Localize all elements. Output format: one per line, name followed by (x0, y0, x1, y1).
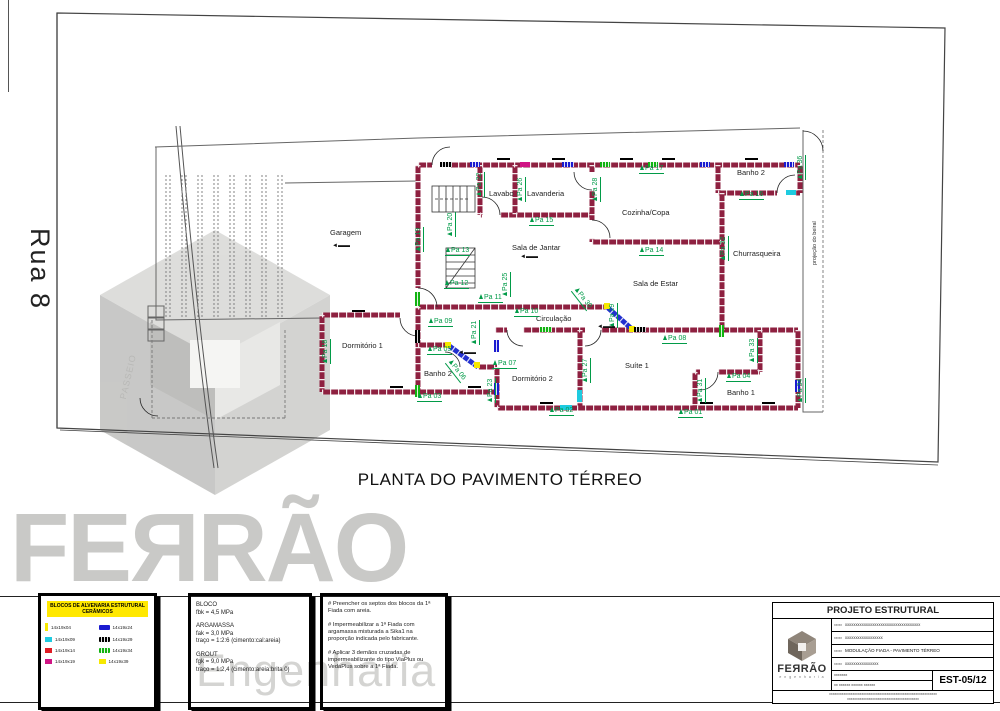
wall-tag-label: Pa 33 (749, 339, 756, 357)
tag-arrow-icon (471, 340, 476, 344)
note-1: # Preencher os septos dos blocos da 1ª F… (328, 601, 440, 615)
notes-panel: # Preencher os septos dos blocos da 1ª F… (320, 593, 448, 710)
drawing-title-row: xxxxx MODULAÇÃO FIADA - PAVIMENTO TÉRREO (832, 645, 993, 658)
window-tick (390, 386, 403, 388)
sheet-code: EST-05/12 (939, 675, 986, 686)
block-chip (786, 190, 796, 195)
wall-tag-label: Pa 11 (484, 294, 502, 301)
wall-tag-label: Pa 27 (582, 359, 589, 377)
legend-item-label: 14x19x29 (113, 637, 133, 642)
wall-tag: Pa 16 (739, 191, 764, 200)
legend-item-label: 14x19x39 (109, 659, 129, 664)
wall-tag: Pa 19 (415, 227, 424, 252)
tag-arrow-icon (445, 280, 449, 285)
company-brand-text: FEЯRÃO (777, 663, 826, 675)
title-block-header: PROJETO ESTRUTURAL (773, 603, 993, 619)
wall-tag-label: Pa 30 (576, 291, 593, 310)
row-label: xxxxx (834, 662, 842, 666)
wall-tag: Pa 34 (797, 378, 806, 403)
wall-tag-label: Pa 13 (451, 247, 469, 254)
wall-tag-label: Pa 29 (609, 304, 616, 322)
title-block-row: xxxxx xxxxxxxxxxxxxxxxxx (832, 632, 993, 645)
window-tick (468, 386, 481, 388)
block-chip (784, 162, 794, 167)
wall-tag-label: Pa 06 (450, 363, 467, 382)
legend-item-label: 14x19x04 (51, 625, 71, 630)
wall-tag: Pa 28 (592, 177, 601, 202)
drawing-title-value: MODULAÇÃO FIADA - PAVIMENTO TÉRREO (845, 648, 940, 653)
wall-tag: Pa 03 (417, 393, 442, 402)
tag-arrow-icon (727, 373, 731, 378)
legend-chip-icon (99, 659, 106, 664)
tag-arrow-icon (429, 318, 433, 323)
legend-item: 14x19x09 (45, 637, 97, 642)
block-chip (520, 162, 530, 167)
wall-tag-label: Pa 22 (476, 173, 483, 191)
wall-tag-label: Pa 12 (450, 280, 468, 287)
room-label: Circulação (536, 314, 571, 323)
room-label: Garagem (330, 228, 361, 237)
room-label: Dormitório 1 (342, 341, 383, 350)
note-2: # Impermeabilizar a 1ª Fiada com argamas… (328, 622, 440, 643)
window-tick (662, 158, 675, 160)
tag-arrow-icon (493, 360, 497, 365)
legend-item-label: 14x19x09 (55, 637, 75, 642)
legend-panel: BLOCOS DE ALVENARIA ESTRUTURAL CERÂMICOS… (38, 593, 157, 710)
room-label: Banho 1 (727, 388, 755, 397)
wall-tag: Pa 08 (662, 335, 687, 344)
legend-item: 14x19x19 (45, 659, 97, 664)
block-chip (415, 292, 420, 306)
row-value: xxxxxxx (834, 673, 847, 677)
company-cube-icon (787, 630, 817, 662)
wall-tag: Pa 01 (678, 409, 703, 418)
wall-tag-label: Pa 05 (433, 346, 451, 353)
block-chip (474, 362, 480, 368)
wall-tag: Pa 20 (447, 212, 456, 237)
tag-arrow-icon (502, 292, 507, 296)
legend-chip-icon (99, 637, 110, 642)
tag-arrow-icon (740, 191, 744, 196)
block-chip (577, 390, 582, 402)
wall-tag: Pa 30 (571, 286, 594, 311)
footer-line2: xxxxxxxxxxxxxxxxxxxxxxxxxxxxxxxxxxxxxxxx (773, 697, 993, 702)
room-label: Cozinha/Copa (622, 208, 670, 217)
level-arrow-icon: ◄▬▬ (458, 350, 476, 356)
room-label: Dormitório 2 (512, 374, 553, 383)
legend-item-label: 14x19x24 (113, 625, 133, 630)
tag-arrow-icon (592, 197, 597, 201)
wall-tag: Pa 02 (549, 407, 574, 416)
legend-title-line2: CERÂMICOS (82, 609, 113, 615)
wall-tag: Pa 25 (502, 272, 511, 297)
tag-arrow-icon (418, 393, 422, 398)
level-arrow-icon: ◄▬▬ (332, 243, 350, 249)
tag-arrow-icon (697, 398, 702, 402)
wall-tag: Pa 31 (697, 378, 706, 403)
wall-tag: Pa 21 (471, 320, 480, 345)
row-value: xxxxxxxxxxxxxxxxxx (845, 635, 883, 640)
wall-tag-label: Pa 10 (520, 308, 538, 315)
tag-arrow-icon (517, 197, 522, 201)
window-tick (762, 402, 775, 404)
wall-tag-label: Pa 03 (423, 393, 441, 400)
window-tick (620, 158, 633, 160)
spec-grout-title: GROUT (196, 652, 304, 660)
tag-arrow-icon (447, 232, 452, 236)
wall-tag-label: Pa 04 (732, 373, 750, 380)
block-chip (415, 330, 420, 343)
wall-tag: Pa 07 (492, 360, 517, 369)
window-tick (540, 402, 553, 404)
row-label: xxxxx (834, 649, 842, 653)
block-chip (600, 162, 610, 167)
wall-tag-label: Pa 02 (555, 407, 573, 414)
wall-tag-label: Pa 15 (535, 217, 553, 224)
wall-tag-label: Pa 08 (668, 335, 686, 342)
room-label: Lavabo (489, 189, 514, 198)
level-arrow-icon: ◄▬▬ (520, 254, 538, 260)
title-block-row: xxxxx xxxxxxxxxxxxxxxx (832, 658, 993, 671)
tag-arrow-icon (749, 358, 754, 362)
legend-chip-icon (99, 648, 110, 653)
wall-tag-label: Pa 01 (684, 409, 702, 416)
wall-tag: Pa 14 (639, 247, 664, 256)
note-3: # Aplicar 3 demãos cruzadas de impermeab… (328, 650, 440, 671)
company-logo-cell: FEЯRÃO e n g e n h a r i a (773, 619, 832, 690)
tag-arrow-icon (476, 192, 481, 196)
wall-tag-label: Pa 17 (645, 165, 663, 172)
room-label: Sala de Jantar (512, 243, 560, 252)
title-block-row: xx xxxxxx xxxxxx xxxxxx (832, 681, 932, 690)
tag-arrow-icon (550, 407, 554, 412)
legend-item: 14x19x39 (99, 659, 151, 664)
wall-tag: Pa 12 (444, 280, 469, 289)
wall-tag: Pa 05 (427, 346, 452, 355)
wall-tag-label: Pa 18 (322, 340, 329, 358)
spec-grout-line1: fgk = 9,0 MPa (196, 659, 304, 667)
row-label: xxxxx (834, 636, 842, 640)
wall-tag-label: Pa 20 (447, 213, 454, 231)
title-block-row: xxxxx xxxxxxxxxxxxxxxxxxxxxxxxxxxxxxxxxx… (832, 619, 993, 632)
tag-arrow-icon (797, 175, 802, 179)
title-block-footer: xxxxxxxxxxxxxxxxxxxxxxxxxxxxxxxxxxxxxxxx… (773, 690, 993, 703)
room-label: Sala de Estar (633, 279, 678, 288)
tag-arrow-icon (582, 378, 587, 382)
title-block: PROJETO ESTRUTURAL FEЯRÃO e n g e n h a … (772, 602, 994, 704)
legend-item: 14x19x24 (99, 623, 151, 631)
wall-tag: Pa 36 (797, 155, 806, 180)
wall-tag-label: Pa 34 (797, 379, 804, 397)
legend-item-label: 14x19x19 (55, 659, 75, 664)
tag-arrow-icon (446, 247, 450, 252)
company-brand-subtext: e n g e n h a r i a (779, 675, 824, 679)
wall-tag-label: Pa 16 (745, 191, 763, 198)
legend-chip-icon (45, 659, 52, 664)
title-block-row: xxxxxxx (832, 671, 932, 681)
tag-arrow-icon (640, 247, 644, 252)
room-label: Suíte 1 (625, 361, 649, 370)
block-chip (719, 325, 724, 337)
legend-item: 14x19x04 (45, 623, 97, 631)
window-tick (745, 158, 758, 160)
spec-argamassa-line2: traço = 1:2:6 (cimento:cal:areia) (196, 638, 304, 646)
wall-tag: Pa 18 (322, 339, 331, 364)
row-label: xxxxx (834, 623, 842, 627)
wall-tag-label: Pa 31 (697, 379, 704, 397)
wall-tag-label: Pa 36 (797, 156, 804, 174)
block-chip (700, 162, 710, 167)
wall-tag-label: Pa 25 (502, 273, 509, 291)
wall-tag-label: Pa 21 (471, 321, 478, 339)
tag-arrow-icon (720, 256, 725, 260)
tag-arrow-icon (663, 335, 667, 340)
wall-tag-label: Pa 26 (517, 178, 524, 196)
wall-tag-label: Pa 32 (720, 237, 727, 255)
room-label: Banho 2 (737, 168, 765, 177)
tag-arrow-icon (479, 294, 483, 299)
block-chip (634, 327, 646, 332)
spec-argamassa-title: ARGAMASSA (196, 623, 304, 631)
block-chip (440, 162, 452, 167)
wall-tag: Pa 13 (445, 247, 470, 256)
legend-chip-icon (99, 625, 110, 630)
wall-tag-label: Pa 19 (415, 228, 422, 246)
wall-tag: Pa 32 (720, 236, 729, 261)
row-value: xxxxxxxxxxxxxxxxxxxxxxxxxxxxxxxxxxxx (845, 622, 920, 627)
spec-bloco-line: fbk = 4,5 MPa (196, 610, 304, 618)
block-chip (540, 327, 552, 332)
room-label: Churrasqueira (733, 249, 781, 258)
block-chip (562, 162, 574, 167)
wall-tag: Pa 17 (639, 165, 664, 174)
legend-item-label: 14x19x34 (113, 648, 133, 653)
wall-tag: Pa 22 (476, 172, 485, 197)
wall-tag: Pa 15 (529, 217, 554, 226)
wall-tag: Pa 27 (582, 358, 591, 383)
legend-chip-icon (45, 648, 52, 653)
wall-tag: Pa 23 (487, 378, 496, 403)
tag-arrow-icon (428, 346, 432, 351)
plan-label-overlay: GaragemLavaboLavanderiaCozinha/CopaBanho… (0, 0, 1000, 530)
tag-arrow-icon (487, 398, 492, 402)
tag-arrow-icon (679, 409, 683, 414)
window-tick (552, 158, 565, 160)
legend-chip-icon (45, 637, 52, 642)
wall-tag-label: Pa 23 (487, 379, 494, 397)
row-value: xx xxxxxx xxxxxx xxxxxx (834, 683, 875, 687)
block-chip (470, 162, 480, 167)
wall-tag: Pa 26 (517, 177, 526, 202)
tag-arrow-icon (640, 165, 644, 170)
sheet-code-cell: EST-05/12 (932, 671, 993, 690)
level-arrow-icon: ◄▬▬ (597, 324, 615, 330)
wall-tag: Pa 33 (749, 338, 758, 363)
tag-arrow-icon (322, 359, 327, 363)
window-tick (497, 158, 510, 160)
room-label: Banho 2 (424, 369, 452, 378)
tag-arrow-icon (797, 398, 802, 402)
wall-tag: Pa 04 (726, 373, 751, 382)
tag-arrow-icon (530, 217, 534, 222)
wall-tag-label: Pa 09 (434, 318, 452, 325)
wall-tag: Pa 10 (514, 308, 539, 317)
spec-grout-line2: traço = 1:2,4 (cimento:areia:brita 0) (196, 667, 304, 675)
legend-title: BLOCOS DE ALVENARIA ESTRUTURAL CERÂMICOS (47, 601, 148, 617)
block-chip (494, 340, 499, 352)
tag-arrow-icon (515, 308, 519, 313)
window-tick (352, 310, 365, 312)
legend-chip-icon (45, 623, 48, 631)
drawing-sheet: FEЯRÃO Engenharia (0, 0, 1000, 711)
wall-tag-label: Pa 14 (645, 247, 663, 254)
specs-panel: BLOCO fbk = 4,5 MPa ARGAMASSA fak = 3,0 … (188, 593, 312, 710)
legend-item: 14x19x29 (99, 637, 151, 642)
legend-item-label: 14x19x14 (55, 648, 75, 653)
row-value: xxxxxxxxxxxxxxxx (845, 661, 879, 666)
wall-tag-label: Pa 28 (592, 178, 599, 196)
spec-argamassa-line1: fak = 3,0 MPa (196, 631, 304, 639)
legend-item: 14x19x34 (99, 648, 151, 653)
wall-tag: Pa 09 (428, 318, 453, 327)
spec-bloco-title: BLOCO (196, 602, 304, 610)
wall-tag-label: Pa 07 (498, 360, 516, 367)
room-label: Lavanderia (527, 189, 564, 198)
legend-items: 14x19x0414x19x2414x19x0914x19x2914x19x14… (45, 623, 150, 664)
legend-item: 14x19x14 (45, 648, 97, 653)
wall-tag: Pa 11 (478, 294, 503, 303)
tag-arrow-icon (415, 247, 420, 251)
